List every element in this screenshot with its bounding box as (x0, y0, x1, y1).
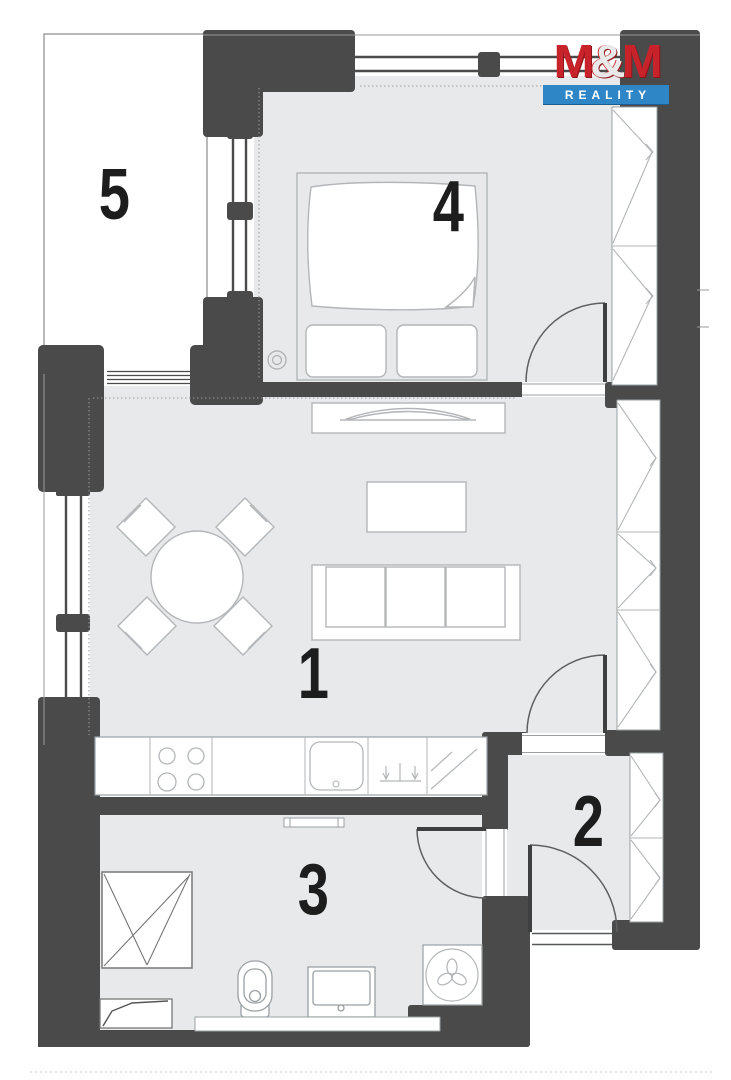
wall (227, 202, 253, 220)
wall (657, 400, 700, 756)
floor-plan: 1 2 3 4 5 M&M REALITY (0, 0, 731, 1080)
wall (38, 345, 104, 492)
wall (38, 697, 100, 1047)
brand-letter-m2: M (622, 36, 659, 87)
shaft-niche (100, 999, 172, 1028)
wall (657, 105, 700, 390)
pillow-right (397, 325, 477, 377)
kitchen-sink (310, 742, 363, 790)
washing-machine (423, 945, 482, 1005)
brand-wordmark: M&M (543, 41, 669, 83)
wall (663, 752, 700, 924)
washbasin (308, 967, 375, 1017)
room-label-2: 2 (573, 786, 603, 858)
toilet (238, 961, 272, 1017)
wall (255, 382, 522, 397)
bedroom-wardrobe (612, 107, 657, 385)
brand-letter-m1: M (553, 36, 590, 87)
wall (478, 52, 500, 77)
bathroom-door-opening (483, 829, 507, 896)
wall (482, 732, 528, 755)
entry-hall-wardrobe (630, 753, 663, 922)
sofa-cushion (446, 567, 505, 627)
wall (612, 920, 700, 950)
wall (203, 30, 263, 137)
wall (56, 484, 90, 496)
wall (38, 1030, 413, 1047)
brand-logo: M&M REALITY (543, 40, 669, 104)
radiator (284, 818, 344, 827)
sofa-cushion (326, 567, 385, 627)
brand-ampersand: & (590, 36, 621, 87)
coffee-table (367, 482, 466, 532)
living-window-strip (56, 490, 90, 698)
wall (95, 797, 487, 815)
wall (56, 614, 90, 632)
living-door-opening (522, 733, 605, 755)
pillow-left (306, 325, 386, 377)
living-room-wardrobe (617, 400, 660, 730)
entry-door-opening (532, 930, 612, 948)
dining-table (151, 531, 243, 623)
room-label-3: 3 (298, 854, 328, 926)
kitchen-counter (95, 737, 487, 795)
room-label-1: 1 (298, 638, 328, 710)
sofa (312, 565, 520, 640)
wall (190, 345, 263, 405)
room-label-4: 4 (433, 171, 463, 243)
shower (102, 872, 192, 968)
bathroom-ledge (195, 1017, 440, 1031)
brand-subtitle: REALITY (543, 85, 669, 104)
room-label-5: 5 (99, 159, 129, 231)
wall (227, 125, 253, 139)
tv-stand (312, 403, 505, 433)
sofa-cushion (386, 567, 445, 627)
